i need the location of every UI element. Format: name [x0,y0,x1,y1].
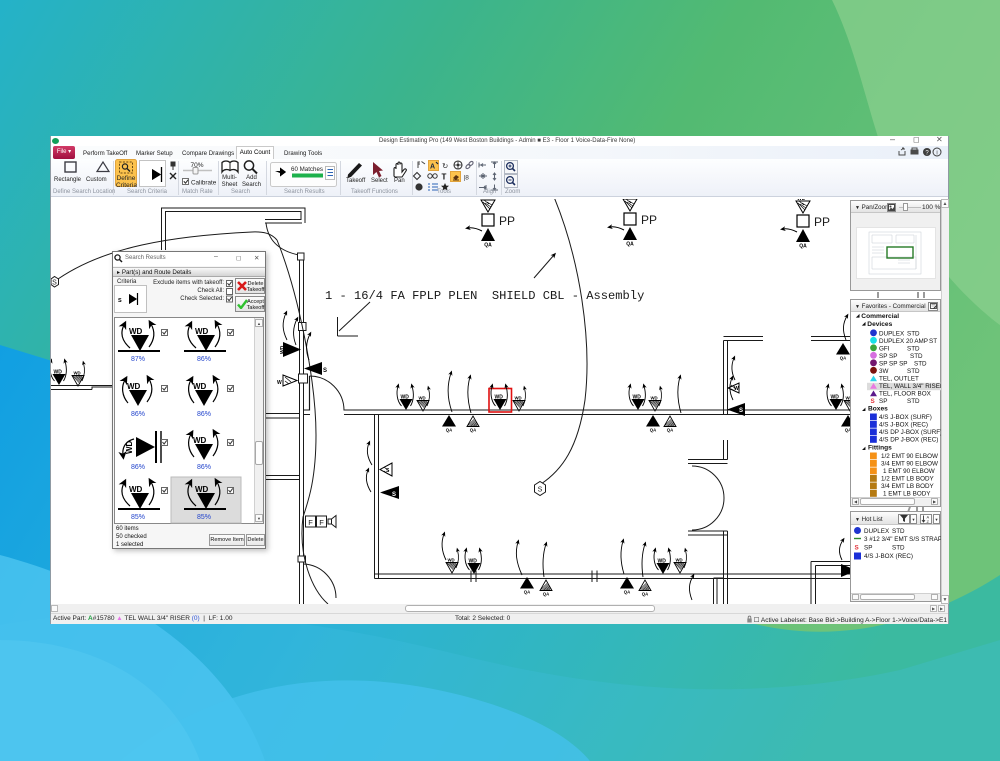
svg-text:WD: WD [797,199,806,202]
svg-text:1/2 EMT LB BODY: 1/2 EMT LB BODY [881,476,935,483]
svg-text:S: S [386,468,390,474]
svg-text:60 Matches: 60 Matches [291,166,323,173]
svg-text:3/4 EMT 90 ELBOW: 3/4 EMT 90 ELBOW [881,461,938,468]
svg-text:S: S [392,492,396,498]
svg-text:S: S [323,368,327,374]
svg-text:86%: 86% [131,464,145,471]
svg-text:QA: QA [799,244,807,250]
svg-text:S: S [871,398,875,405]
svg-text:WD: WD [624,199,633,200]
svg-text:86%: 86% [197,356,211,363]
svg-text:◢: ◢ [862,407,866,412]
svg-text:3/4 EMT LB BODY: 3/4 EMT LB BODY [881,483,935,490]
svg-text:PP: PP [814,215,830,229]
svg-text:WD: WD [482,199,491,201]
svg-text:Calibrate: Calibrate [191,180,217,187]
svg-text:DUPLEX: DUPLEX [879,330,905,337]
svg-text:↻: ↻ [442,162,448,171]
svg-text:3 #12 3/4" EMT S/S STRAP CON: 3 #12 3/4" EMT S/S STRAP CON [864,536,941,543]
svg-text:1/2 EMT 90 ELBOW: 1/2 EMT 90 ELBOW [881,453,938,460]
svg-text:S: S [855,545,859,552]
svg-text:F: F [308,518,313,527]
svg-text:SP: SP [879,398,887,405]
svg-text:W: W [734,386,739,392]
svg-text:86%: 86% [131,411,145,418]
svg-text:STD: STD [910,353,923,360]
svg-text:SP: SP [864,545,872,552]
svg-text:S: S [118,298,122,304]
svg-text:STD: STD [892,545,905,552]
svg-text:STD: STD [907,330,920,337]
svg-text:SP SP SP: SP SP SP [879,360,907,367]
svg-text:3W: 3W [879,368,889,375]
svg-text:4/S J-BOX (SURF): 4/S J-BOX (SURF) [879,414,932,421]
svg-text:STD: STD [914,360,927,367]
svg-text:S: S [538,487,543,494]
svg-text:STD: STD [907,345,920,352]
svg-text:Fittings: Fittings [868,445,892,452]
svg-text:4/S J-BOX (REC): 4/S J-BOX (REC) [864,553,913,560]
svg-text:TEL, OUTLET: TEL, OUTLET [879,375,919,382]
svg-text:SP SP: SP SP [879,353,897,360]
svg-text:Boxes: Boxes [868,406,888,413]
svg-text:STD: STD [907,368,920,375]
svg-text:A: A [430,164,435,171]
svg-text:QA: QA [484,243,492,249]
svg-text:87%: 87% [131,356,145,363]
svg-text:DUPLEX: DUPLEX [864,528,890,535]
svg-text:QA: QA [626,242,634,248]
svg-text:4/S DP J-BOX (SURF): 4/S DP J-BOX (SURF) [879,429,941,436]
svg-text:STD: STD [892,528,905,535]
svg-text:S: S [739,408,743,414]
svg-text:4/S J-BOX (REC): 4/S J-BOX (REC) [879,422,928,429]
svg-text:1 EMT 90 ELBOW: 1 EMT 90 ELBOW [883,468,935,475]
svg-text:◢: ◢ [862,446,866,451]
svg-text:86%: 86% [197,411,211,418]
svg-text:86%: 86% [197,464,211,471]
svg-text:W: W [277,380,282,386]
svg-text:i: i [936,151,937,157]
svg-text:1 - 16/4 FA FPLP PLEN SHIELD: 1 - 16/4 FA FPLP PLEN SHIELD CBL - Assem… [325,289,644,303]
svg-text:ST: ST [929,338,937,345]
svg-text:T: T [442,173,447,182]
svg-text:WD: WD [280,345,286,354]
svg-text:85%: 85% [197,514,211,521]
svg-text:S: S [52,280,57,287]
svg-text:85%: 85% [131,514,145,521]
svg-text:TEL, FLOOR BOX: TEL, FLOOR BOX [879,390,932,397]
svg-text:PP: PP [499,214,515,228]
svg-text:DUPLEX 20 AMP: DUPLEX 20 AMP [879,338,928,345]
svg-text:TEL, WALL 3/4" RISER: TEL, WALL 3/4" RISER [879,383,941,390]
svg-text:PP: PP [641,213,657,227]
svg-text:|8: |8 [464,175,470,182]
svg-text:4/S DP J-BOX (REC): 4/S DP J-BOX (REC) [879,437,938,444]
svg-text:GFI: GFI [879,345,890,352]
svg-text:F: F [319,518,324,527]
svg-text:STD: STD [907,398,920,405]
